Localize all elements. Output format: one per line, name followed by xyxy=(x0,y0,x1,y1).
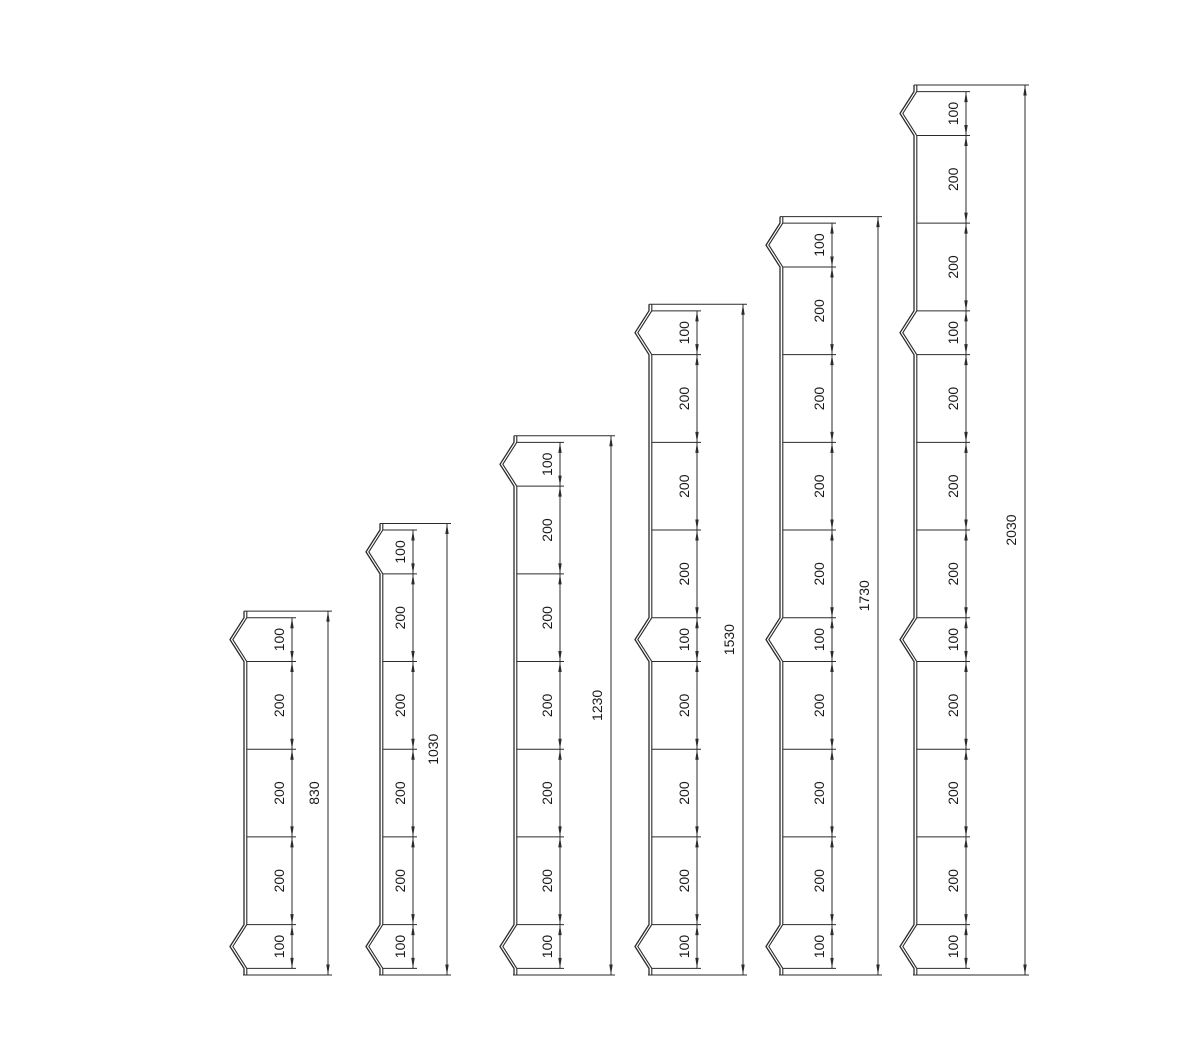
dimension-arrow xyxy=(290,837,293,848)
dimension-arrow xyxy=(326,965,329,976)
segment-dimension-label: 200 xyxy=(539,781,555,805)
segment-dimension-label: 200 xyxy=(811,693,827,717)
post-1030: 1002002002002001001030 xyxy=(366,523,451,975)
segment-dimension-label: 200 xyxy=(392,869,408,893)
dimension-arrow xyxy=(830,826,833,837)
segment-dimension-label: 200 xyxy=(676,781,692,805)
post-profile-inner-line xyxy=(638,304,652,975)
dimension-arrow xyxy=(964,432,967,443)
dimension-arrow xyxy=(411,739,414,750)
dimension-arrow xyxy=(411,574,414,585)
dimension-arrow xyxy=(964,520,967,531)
dimension-arrow xyxy=(695,749,698,760)
dimension-arrow xyxy=(290,662,293,673)
dimension-arrow xyxy=(830,662,833,673)
segment-dimension-label: 100 xyxy=(676,321,692,345)
dimension-arrow xyxy=(964,662,967,673)
dimension-arrow xyxy=(964,618,967,629)
dimension-arrow xyxy=(1023,85,1026,96)
segment-dimension-label: 200 xyxy=(392,693,408,717)
dimension-arrow xyxy=(695,914,698,925)
dimension-arrow xyxy=(1023,965,1026,976)
technical-drawing-canvas: 1002002002001008301002002002002001001030… xyxy=(0,0,1201,1048)
dimension-arrow xyxy=(830,442,833,453)
dimension-arrow xyxy=(695,662,698,673)
segment-dimension-label: 200 xyxy=(676,869,692,893)
segment-dimension-label: 100 xyxy=(392,935,408,959)
post-profile-outer-line xyxy=(366,523,380,975)
dimension-arrow xyxy=(558,925,561,936)
dimension-arrow xyxy=(326,611,329,622)
segment-dimension-label: 200 xyxy=(811,869,827,893)
segment-dimension-label: 200 xyxy=(539,693,555,717)
segment-dimension-label: 100 xyxy=(811,233,827,257)
dimension-arrow xyxy=(830,925,833,936)
drawing-page: 1002002002001008301002002002002001001030… xyxy=(0,0,1201,1048)
segment-dimension-label: 200 xyxy=(945,255,961,279)
dimension-arrow xyxy=(695,651,698,662)
dimension-arrow xyxy=(830,530,833,541)
dimension-arrow xyxy=(411,958,414,969)
dimension-arrow xyxy=(695,739,698,750)
dimension-arrow xyxy=(695,355,698,366)
dimension-arrow xyxy=(964,125,967,136)
overall-dimension-label: 1530 xyxy=(721,624,737,655)
overall-dimension-label: 1730 xyxy=(856,580,872,611)
segment-dimension-label: 200 xyxy=(945,869,961,893)
dimension-arrow xyxy=(964,135,967,146)
dimension-arrow xyxy=(964,223,967,234)
dimension-arrow xyxy=(411,749,414,760)
dimension-arrow xyxy=(830,223,833,234)
dimension-arrow xyxy=(964,530,967,541)
dimension-arrow xyxy=(558,749,561,760)
dimension-arrow xyxy=(830,355,833,366)
dimension-arrow xyxy=(964,826,967,837)
dimension-arrow xyxy=(964,92,967,103)
segment-dimension-label: 200 xyxy=(811,562,827,586)
dimension-arrow xyxy=(558,651,561,662)
post-profile-inner-line xyxy=(369,523,383,975)
dimension-arrow xyxy=(830,618,833,629)
dimension-arrow xyxy=(964,344,967,355)
segment-dimension-label: 200 xyxy=(945,387,961,411)
segment-dimension-label: 200 xyxy=(539,606,555,630)
segment-dimension-label: 200 xyxy=(945,781,961,805)
dimension-arrow xyxy=(964,749,967,760)
dimension-arrow xyxy=(964,739,967,750)
segment-dimension-label: 200 xyxy=(811,474,827,498)
dimension-arrow xyxy=(695,958,698,969)
post-profile-outer-line xyxy=(900,85,914,975)
dimension-arrow xyxy=(445,965,448,976)
dimension-arrow xyxy=(695,344,698,355)
segment-dimension-label: 200 xyxy=(392,781,408,805)
dimension-arrow xyxy=(695,618,698,629)
dimension-arrow xyxy=(609,965,612,976)
dimension-arrow xyxy=(609,436,612,447)
dimension-arrow xyxy=(558,826,561,837)
segment-dimension-label: 200 xyxy=(271,693,287,717)
segment-dimension-label: 200 xyxy=(945,562,961,586)
dimension-arrow xyxy=(558,914,561,925)
dimension-arrow xyxy=(558,476,561,487)
dimension-arrow xyxy=(830,958,833,969)
dimension-arrow xyxy=(290,618,293,629)
segment-dimension-label: 200 xyxy=(539,518,555,542)
segment-dimension-label: 200 xyxy=(676,387,692,411)
post-1730: 1002002002002001002002002001001730 xyxy=(766,217,882,975)
segment-dimension-label: 200 xyxy=(945,693,961,717)
segment-dimension-label: 100 xyxy=(811,628,827,652)
post-profile-outer-line xyxy=(635,304,649,975)
dimension-arrow xyxy=(411,530,414,541)
dimension-arrow xyxy=(411,563,414,574)
dimension-arrow xyxy=(830,749,833,760)
dimension-arrow xyxy=(558,563,561,574)
dimension-arrow xyxy=(964,958,967,969)
segment-dimension-label: 100 xyxy=(945,628,961,652)
dimension-arrow xyxy=(964,442,967,453)
segment-dimension-label: 200 xyxy=(676,562,692,586)
post-profile-inner-line xyxy=(769,217,783,975)
dimension-arrow xyxy=(411,826,414,837)
dimension-arrow xyxy=(964,300,967,311)
post-profile-inner-line xyxy=(233,611,247,975)
segment-dimension-label: 100 xyxy=(945,102,961,126)
segment-dimension-label: 100 xyxy=(392,540,408,564)
dimension-arrow xyxy=(411,651,414,662)
dimension-arrow xyxy=(964,925,967,936)
segment-dimension-label: 100 xyxy=(271,628,287,652)
segment-dimension-label: 200 xyxy=(811,781,827,805)
segment-dimension-label: 100 xyxy=(539,935,555,959)
post-830: 100200200200100830 xyxy=(230,611,332,975)
overall-dimension-label: 2030 xyxy=(1003,514,1019,545)
segment-dimension-label: 100 xyxy=(945,935,961,959)
dimension-arrow xyxy=(964,311,967,322)
dimension-arrow xyxy=(695,530,698,541)
dimension-arrow xyxy=(290,958,293,969)
post-profile-inner-line xyxy=(903,85,917,975)
dimension-arrow xyxy=(695,826,698,837)
segment-dimension-label: 100 xyxy=(811,935,827,959)
dimension-arrow xyxy=(695,520,698,531)
dimension-arrow xyxy=(290,925,293,936)
overall-dimension-label: 830 xyxy=(306,781,322,805)
dimension-arrow xyxy=(830,432,833,443)
dimension-arrow xyxy=(695,837,698,848)
segment-dimension-label: 200 xyxy=(392,606,408,630)
segment-dimension-label: 100 xyxy=(271,935,287,959)
post-profile-inner-line xyxy=(503,436,517,975)
dimension-arrow xyxy=(558,662,561,673)
dimension-arrow xyxy=(290,739,293,750)
dimension-arrow xyxy=(830,607,833,618)
segment-dimension-label: 100 xyxy=(539,452,555,476)
overall-dimension-label: 1030 xyxy=(425,733,441,764)
dimension-arrow xyxy=(558,442,561,453)
dimension-arrow xyxy=(290,826,293,837)
dimension-arrow xyxy=(411,837,414,848)
dimension-arrow xyxy=(830,520,833,531)
overall-dimension-label: 1230 xyxy=(589,690,605,721)
dimension-arrow xyxy=(695,442,698,453)
post-profile-outer-line xyxy=(766,217,780,975)
segment-dimension-label: 100 xyxy=(676,935,692,959)
dimension-arrow xyxy=(830,837,833,848)
dimension-arrow xyxy=(830,267,833,278)
dimension-arrow xyxy=(964,213,967,224)
dimension-arrow xyxy=(411,914,414,925)
dimension-arrow xyxy=(445,523,448,534)
dimension-arrow xyxy=(558,958,561,969)
segment-dimension-label: 200 xyxy=(945,167,961,191)
dimension-arrow xyxy=(411,925,414,936)
dimension-arrow xyxy=(830,651,833,662)
dimension-arrow xyxy=(830,256,833,267)
dimension-arrow xyxy=(558,574,561,585)
dimension-arrow xyxy=(695,925,698,936)
dimension-arrow xyxy=(964,837,967,848)
segment-dimension-label: 100 xyxy=(945,321,961,345)
dimension-arrow xyxy=(964,607,967,618)
post-profile-outer-line xyxy=(230,611,244,975)
segment-dimension-label: 200 xyxy=(811,387,827,411)
dimension-arrow xyxy=(964,355,967,366)
dimension-arrow xyxy=(290,651,293,662)
segment-dimension-label: 200 xyxy=(676,474,692,498)
post-profile-outer-line xyxy=(500,436,514,975)
segment-dimension-label: 200 xyxy=(271,869,287,893)
dimension-arrow xyxy=(876,217,879,228)
dimension-arrow xyxy=(558,739,561,750)
dimension-arrow xyxy=(290,749,293,760)
dimension-arrow xyxy=(558,837,561,848)
dimension-arrow xyxy=(695,311,698,322)
dimension-arrow xyxy=(830,914,833,925)
dimension-arrow xyxy=(876,965,879,976)
dimension-arrow xyxy=(830,739,833,750)
dimension-arrow xyxy=(964,651,967,662)
post-1230: 1002002002002002001001230 xyxy=(500,436,615,975)
segment-dimension-label: 200 xyxy=(811,299,827,323)
dimension-arrow xyxy=(741,304,744,315)
dimension-arrow xyxy=(695,607,698,618)
dimension-arrow xyxy=(558,486,561,497)
dimension-arrow xyxy=(695,432,698,443)
dimension-arrow xyxy=(741,965,744,976)
dimension-arrow xyxy=(964,914,967,925)
segment-dimension-label: 100 xyxy=(676,628,692,652)
segment-dimension-label: 200 xyxy=(676,693,692,717)
dimension-arrow xyxy=(290,914,293,925)
dimension-arrow xyxy=(830,344,833,355)
segment-dimension-label: 200 xyxy=(271,781,287,805)
post-1530: 1002002002001002002002001001530 xyxy=(635,304,747,975)
segment-dimension-label: 200 xyxy=(539,869,555,893)
dimension-arrow xyxy=(411,662,414,673)
segment-dimension-label: 200 xyxy=(945,474,961,498)
post-2030: 1002002001002002002001002002002001002030 xyxy=(900,85,1029,975)
